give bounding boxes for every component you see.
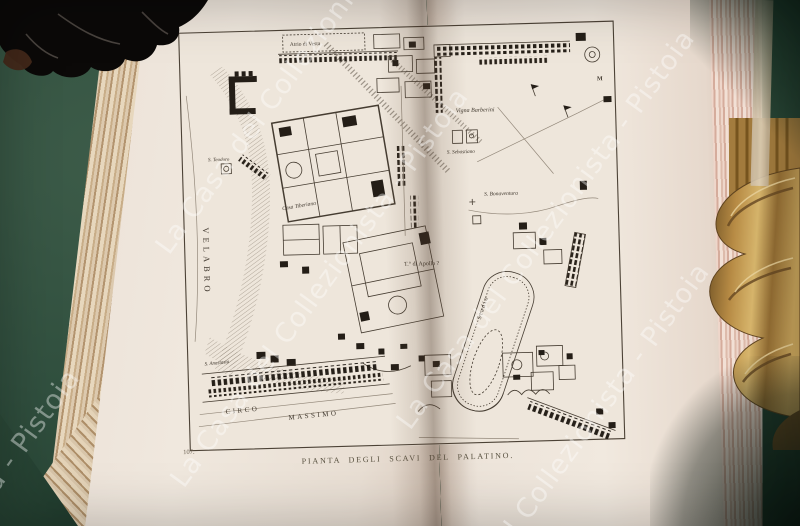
east-stair — [565, 232, 586, 287]
plate-number: 107. — [183, 449, 195, 456]
circo-label: CIRCO — [225, 405, 260, 416]
casa-tiberiana-label: Casa Tiberiana — [282, 201, 317, 213]
massimo-label: MASSIMO — [288, 409, 339, 422]
garden-terraces — [283, 223, 358, 255]
photo-scene: VELABRO S. Teodoro — [0, 0, 800, 526]
black-carved-object — [0, 0, 218, 96]
round-monument — [585, 47, 600, 62]
flag-markers — [531, 83, 572, 118]
corner-shadow-top-right — [690, 0, 800, 160]
corner-shadow-bottom-right — [650, 356, 800, 526]
book-gutter — [378, 0, 480, 526]
velabro-label: VELABRO — [201, 227, 213, 295]
s-teodoro-building — [221, 164, 231, 174]
stadio-label: Stadio — [477, 295, 490, 320]
m-mark-label: M — [597, 76, 603, 82]
crossing-paths — [476, 98, 610, 176]
s-bonaventura-label: S. Bonaventura — [484, 191, 518, 198]
aqueduct-row — [524, 398, 616, 441]
atrio-vesta-label: Atrio di Vesta — [290, 41, 321, 48]
s-teodoro-label: S. Teodoro — [208, 158, 230, 164]
